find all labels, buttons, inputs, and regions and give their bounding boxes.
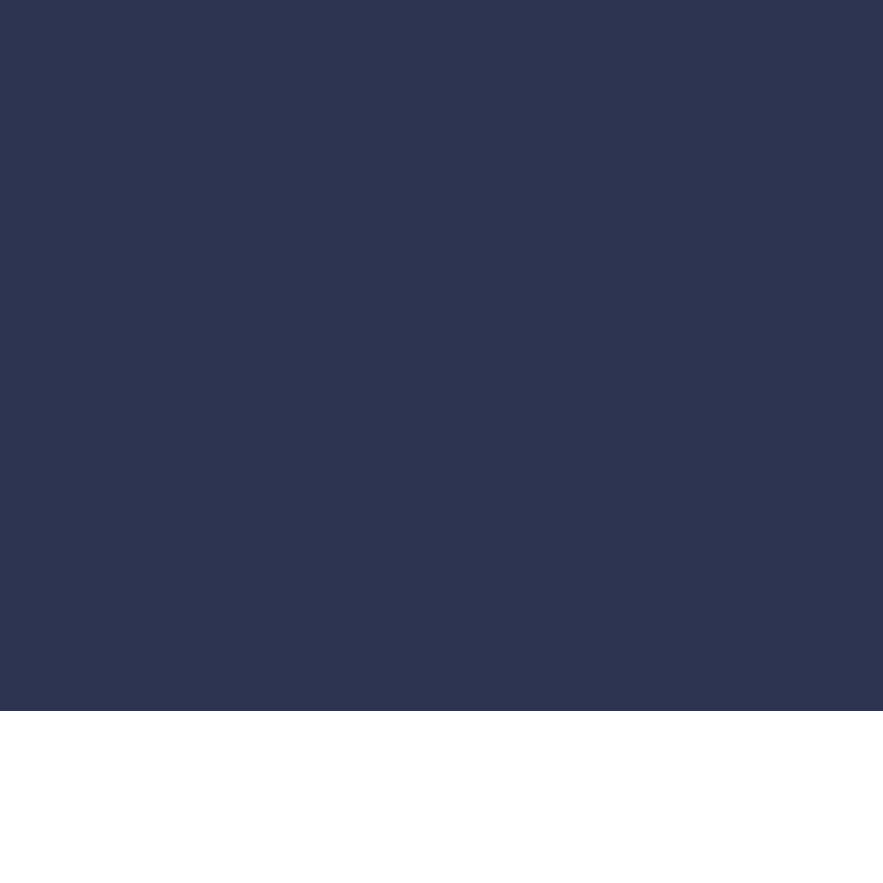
dark-hero-panel xyxy=(0,0,883,711)
screen xyxy=(0,0,883,883)
blank-content-area xyxy=(0,711,883,883)
